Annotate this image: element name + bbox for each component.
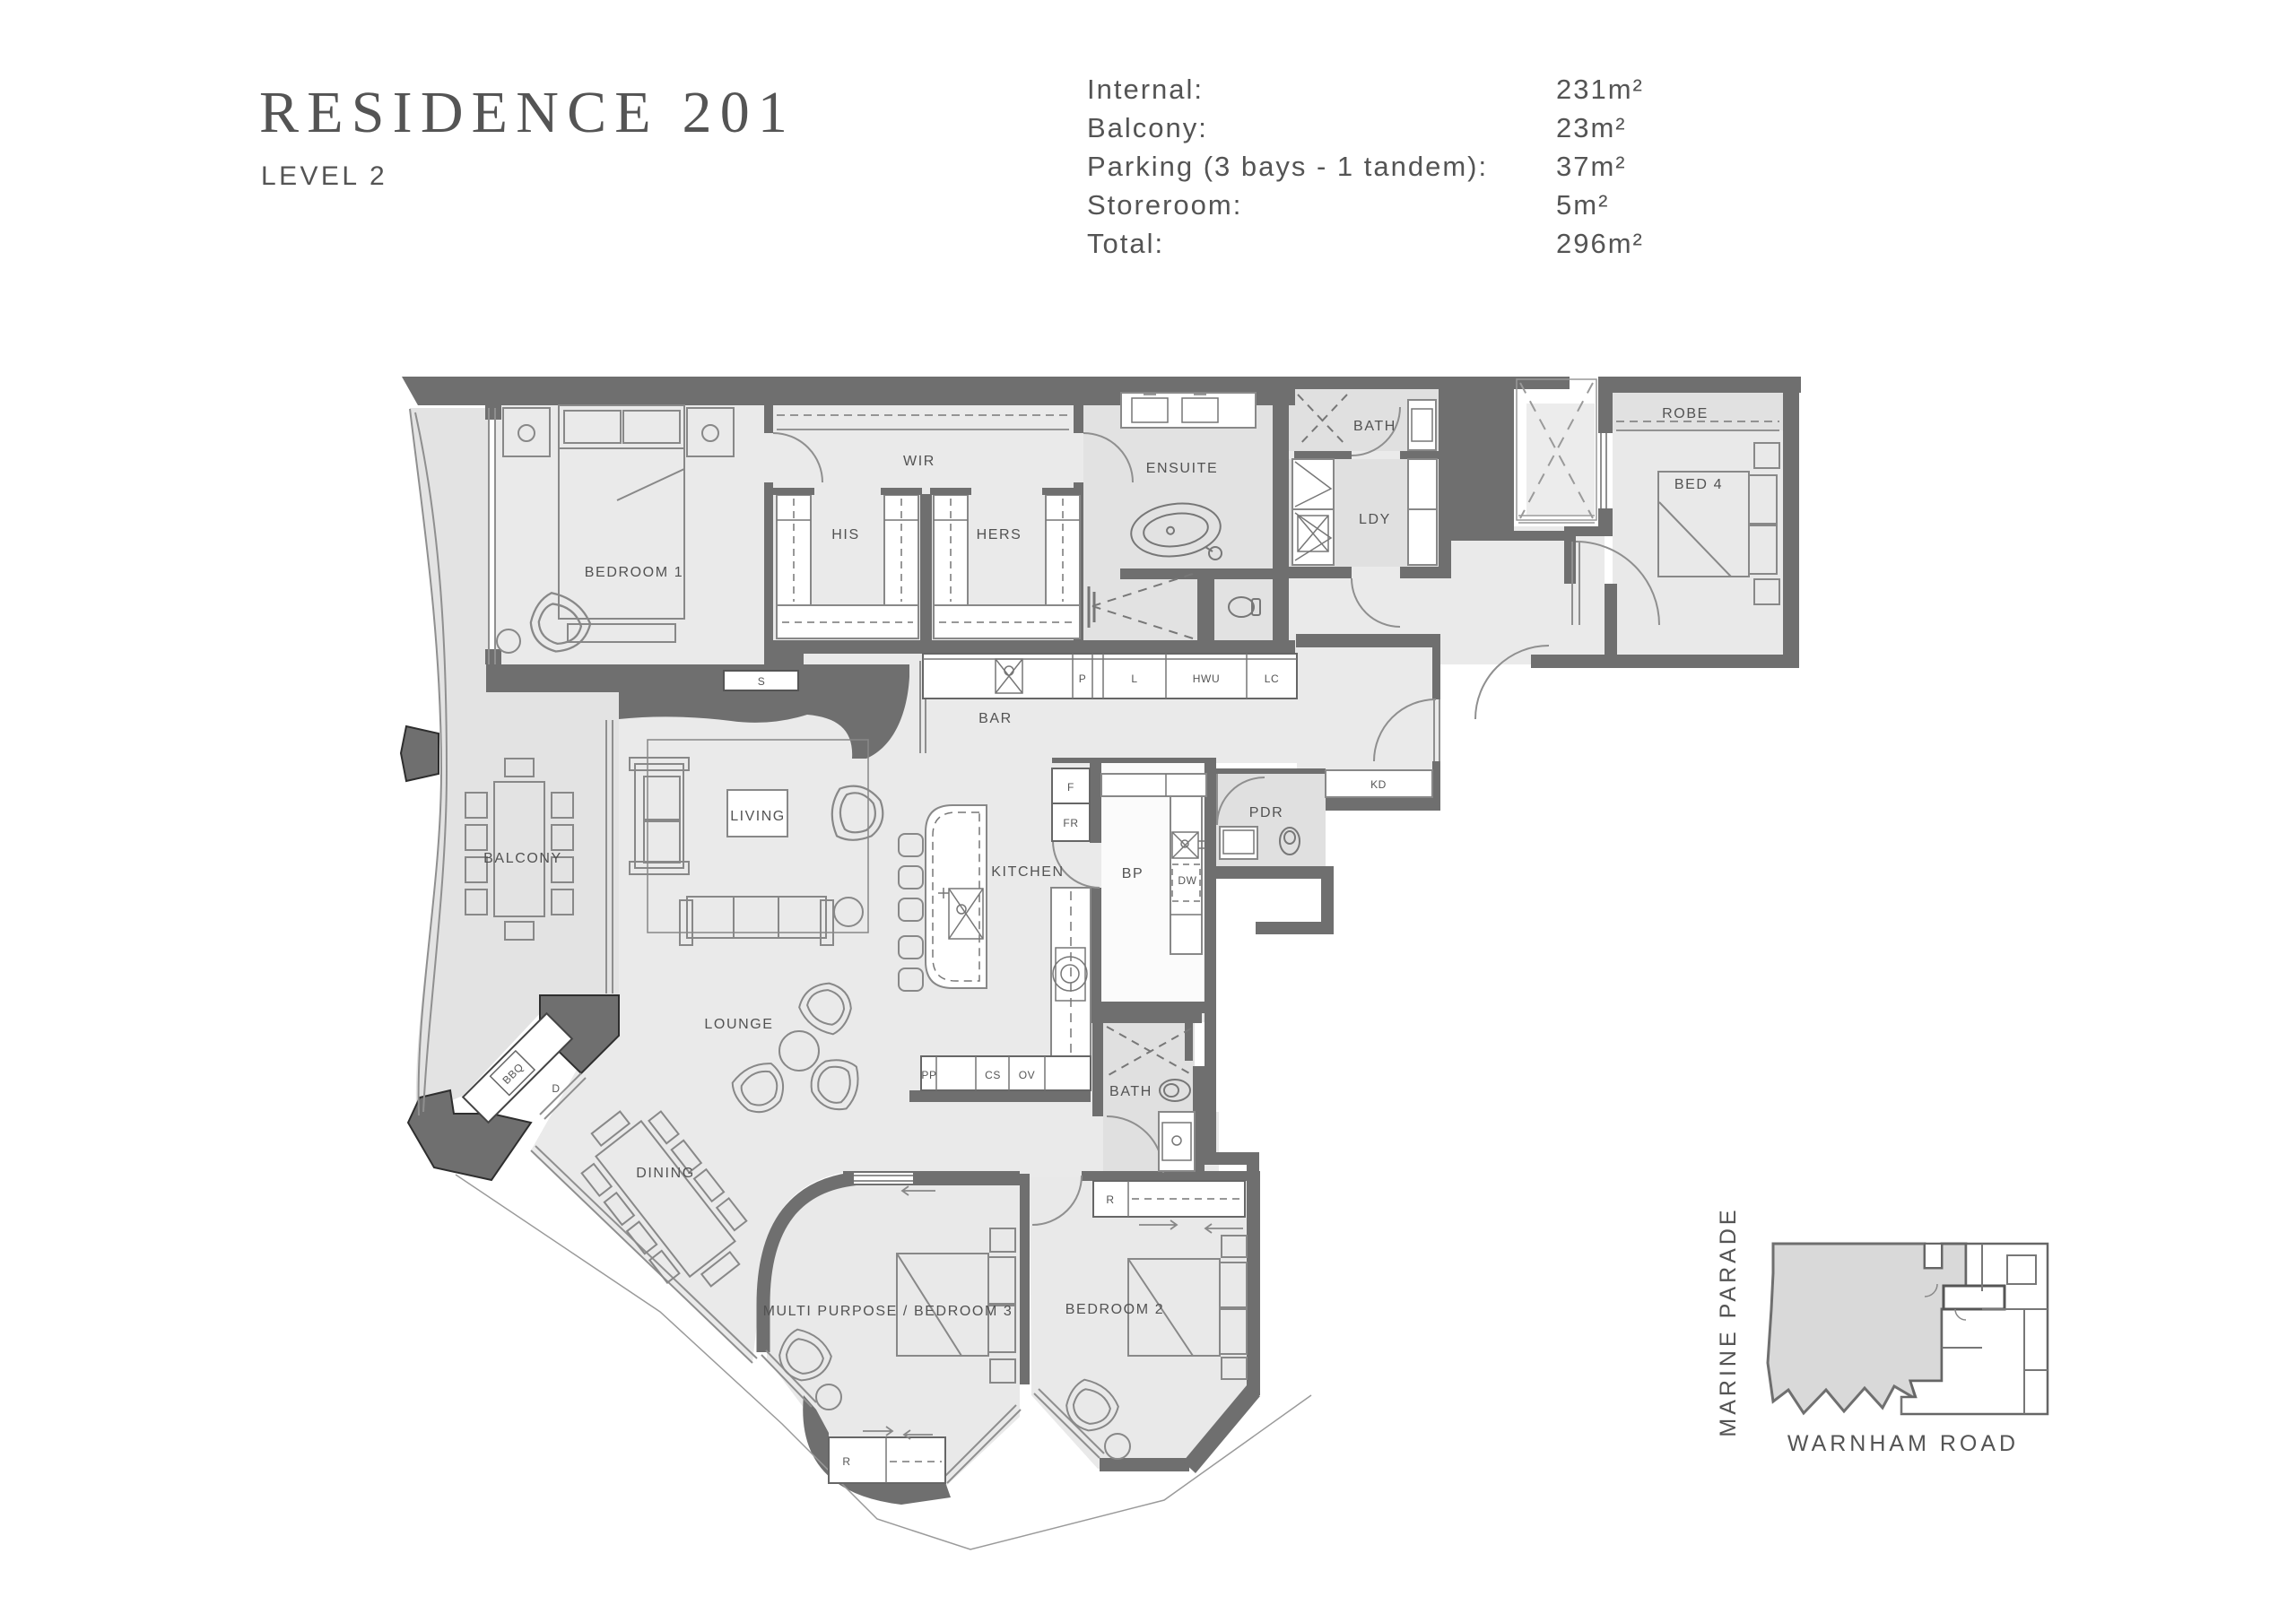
svg-text:BATH: BATH — [1109, 1084, 1152, 1099]
svg-text:Storeroom:: Storeroom: — [1087, 189, 1242, 221]
svg-text:HIS: HIS — [831, 527, 859, 542]
svg-text:Balcony:: Balcony: — [1087, 112, 1208, 143]
svg-text:5m²: 5m² — [1556, 189, 1609, 221]
svg-text:F: F — [1067, 781, 1074, 794]
svg-text:LDY: LDY — [1359, 512, 1391, 527]
svg-text:PDR: PDR — [1249, 805, 1284, 820]
svg-text:L: L — [1131, 672, 1137, 685]
svg-text:Internal:: Internal: — [1087, 74, 1204, 105]
svg-text:HERS: HERS — [977, 527, 1022, 542]
svg-text:BEDROOM 2: BEDROOM 2 — [1065, 1302, 1164, 1317]
svg-text:R: R — [842, 1455, 850, 1468]
svg-text:LOUNGE: LOUNGE — [704, 1017, 773, 1032]
svg-text:LEVEL 2: LEVEL 2 — [261, 161, 387, 191]
svg-text:HWU: HWU — [1193, 672, 1220, 685]
svg-text:PP: PP — [921, 1069, 936, 1081]
svg-text:MULTI PURPOSE / BEDROOM 3: MULTI PURPOSE / BEDROOM 3 — [763, 1304, 1013, 1319]
svg-text:LC: LC — [1265, 672, 1280, 685]
svg-text:WARNHAM ROAD: WARNHAM ROAD — [1787, 1431, 2019, 1456]
svg-text:P: P — [1079, 672, 1087, 685]
svg-text:KITCHEN: KITCHEN — [991, 864, 1064, 880]
svg-text:ENSUITE: ENSUITE — [1146, 461, 1219, 476]
svg-text:BEDROOM 1: BEDROOM 1 — [585, 565, 683, 580]
svg-text:Total:: Total: — [1087, 228, 1164, 259]
svg-text:37m²: 37m² — [1556, 151, 1627, 182]
svg-text:DINING: DINING — [636, 1166, 695, 1181]
svg-text:BAR: BAR — [978, 711, 1013, 726]
svg-text:R: R — [1106, 1193, 1114, 1206]
svg-text:FR: FR — [1063, 817, 1078, 829]
svg-text:Parking (3 bays - 1 tandem):: Parking (3 bays - 1 tandem): — [1087, 151, 1488, 182]
svg-text:D: D — [552, 1082, 560, 1095]
svg-text:WIR: WIR — [903, 454, 935, 469]
svg-text:BATH: BATH — [1353, 419, 1396, 434]
svg-text:231m²: 231m² — [1556, 74, 1644, 105]
svg-text:296m²: 296m² — [1556, 228, 1644, 259]
svg-text:ROBE: ROBE — [1662, 406, 1709, 421]
svg-text:MARINE PARADE: MARINE PARADE — [1716, 1206, 1741, 1436]
svg-text:S: S — [758, 675, 766, 688]
svg-text:RESIDENCE 201: RESIDENCE 201 — [259, 80, 796, 145]
svg-text:OV: OV — [1019, 1069, 1036, 1081]
svg-text:LIVING: LIVING — [730, 809, 785, 824]
svg-text:KD: KD — [1370, 778, 1387, 791]
svg-text:BED 4: BED 4 — [1674, 477, 1723, 492]
svg-text:BALCONY: BALCONY — [483, 851, 562, 866]
svg-text:DW: DW — [1178, 874, 1196, 887]
svg-text:BP: BP — [1122, 866, 1144, 881]
svg-text:23m²: 23m² — [1556, 112, 1627, 143]
svg-text:CS: CS — [985, 1069, 1001, 1081]
